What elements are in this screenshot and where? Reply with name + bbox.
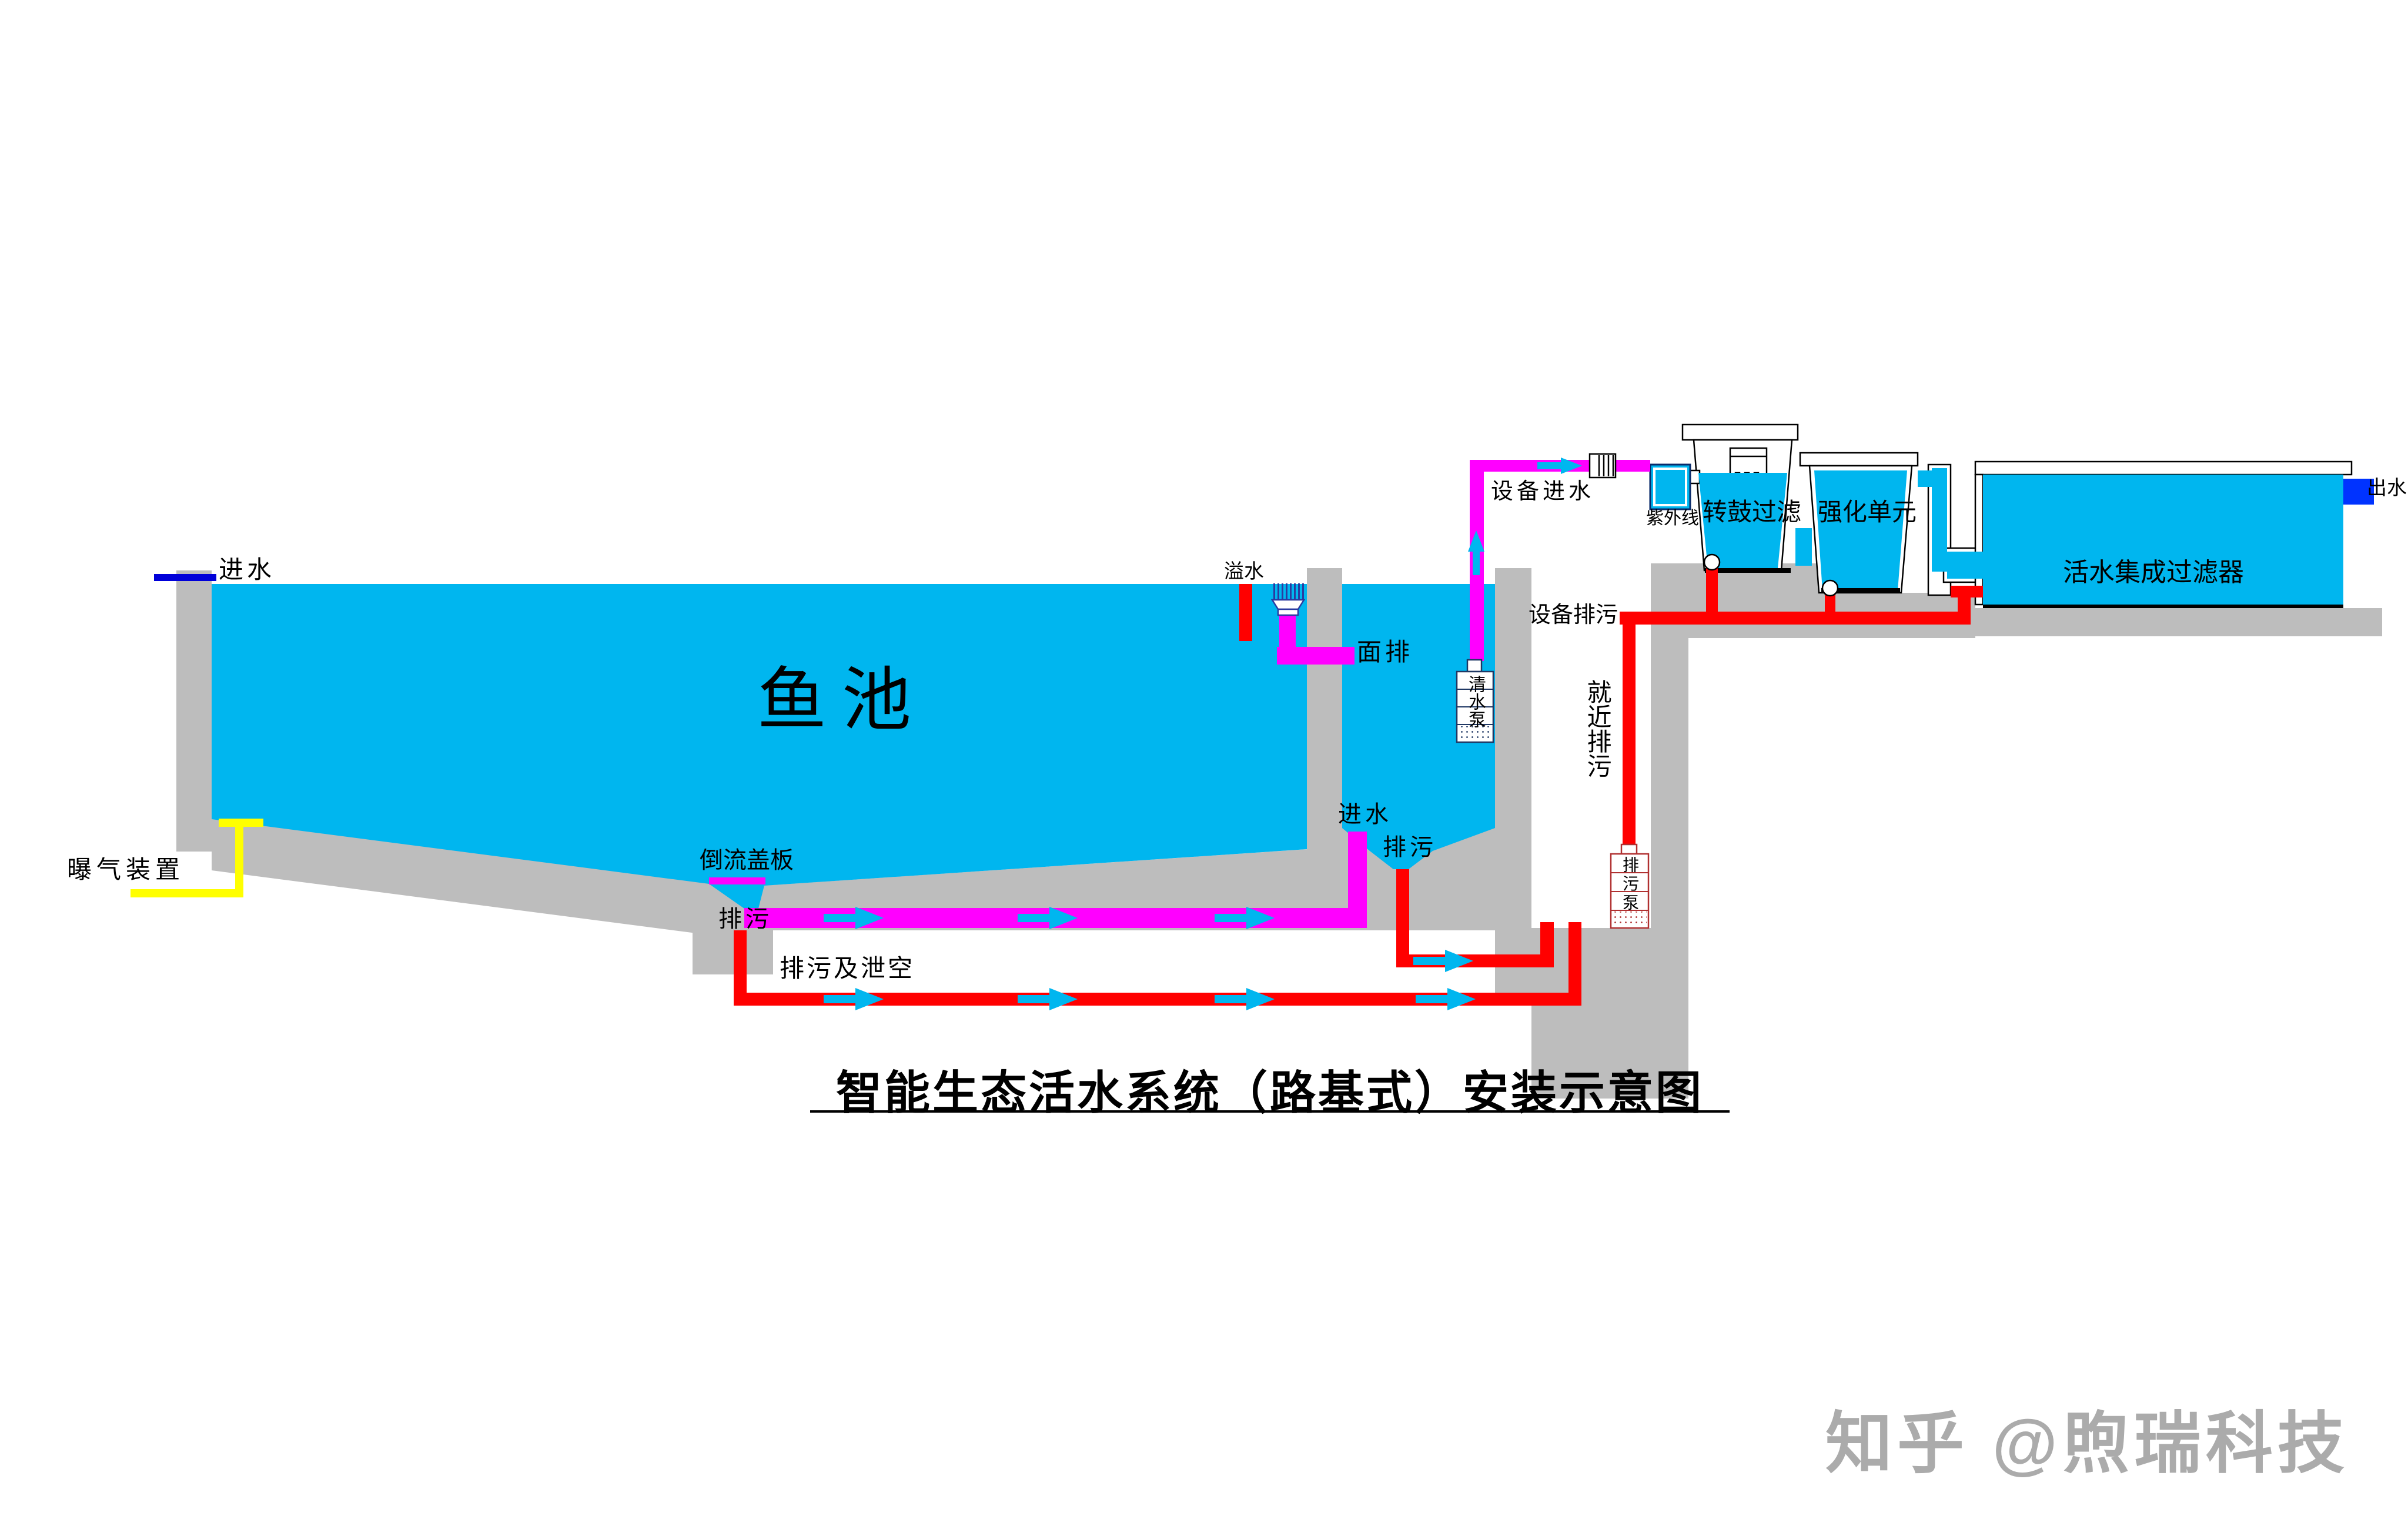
uv-label: 紫外线 (1646, 509, 1699, 528)
nearby-drain-pipe (1623, 625, 1636, 846)
tank2-drain-valve (1822, 580, 1838, 596)
diagram: 进水 鱼池 曝气装置 溢水 面排 倒流盖板 排污 排污及泄空 进水 排污 清水泵… (0, 0, 2408, 1529)
backflow-cover-plate (709, 877, 765, 884)
diagram-shapes (0, 0, 2408, 1529)
pipe-coupling (1590, 454, 1616, 478)
tank1-drain-valve (1704, 555, 1720, 570)
overflow-label: 溢水 (1224, 561, 1264, 583)
aerator-label: 曝气装置 (67, 856, 185, 883)
intensify-unit-label: 强化单元 (1818, 499, 1917, 525)
outlet-label: 出水 (2367, 478, 2407, 499)
surface-drain-pipe (1277, 647, 1354, 665)
drain-empty-label: 排污及泄空 (780, 955, 915, 982)
surface-drain-label: 面排 (1357, 639, 1413, 665)
watermark: 知乎 @煦瑞科技 (1825, 1389, 2349, 1486)
nearby-drain-label: 就近排污 (1585, 679, 1610, 778)
pond-drain-label: 排污 (718, 907, 772, 932)
equipment-drain-label: 设备排污 (1529, 603, 1618, 627)
drum-filter-label: 转鼓过滤 (1703, 499, 1801, 525)
drain-pump-label: 排污泵 (1621, 856, 1638, 913)
pond-inlet-label: 进水 (219, 556, 275, 583)
equipment-drain-pipe (1620, 612, 1971, 625)
pond-inlet-pipe (154, 574, 216, 581)
title-underline (810, 1110, 1730, 1113)
uv-unit (1650, 465, 1690, 509)
overflow-standpipe (1239, 584, 1252, 641)
integrated-filter-label: 活水集成过滤器 (2063, 559, 2244, 587)
clean-pump-label: 清水泵 (1466, 675, 1484, 728)
pond-name-label: 鱼池 (757, 663, 927, 738)
backflow-cover-label: 倒流盖板 (700, 848, 794, 873)
chamber-inlet-label: 进水 (1338, 802, 1392, 827)
chamber-drain-label: 排污 (1383, 835, 1437, 860)
equipment-inlet-label: 设备进水 (1491, 480, 1594, 504)
